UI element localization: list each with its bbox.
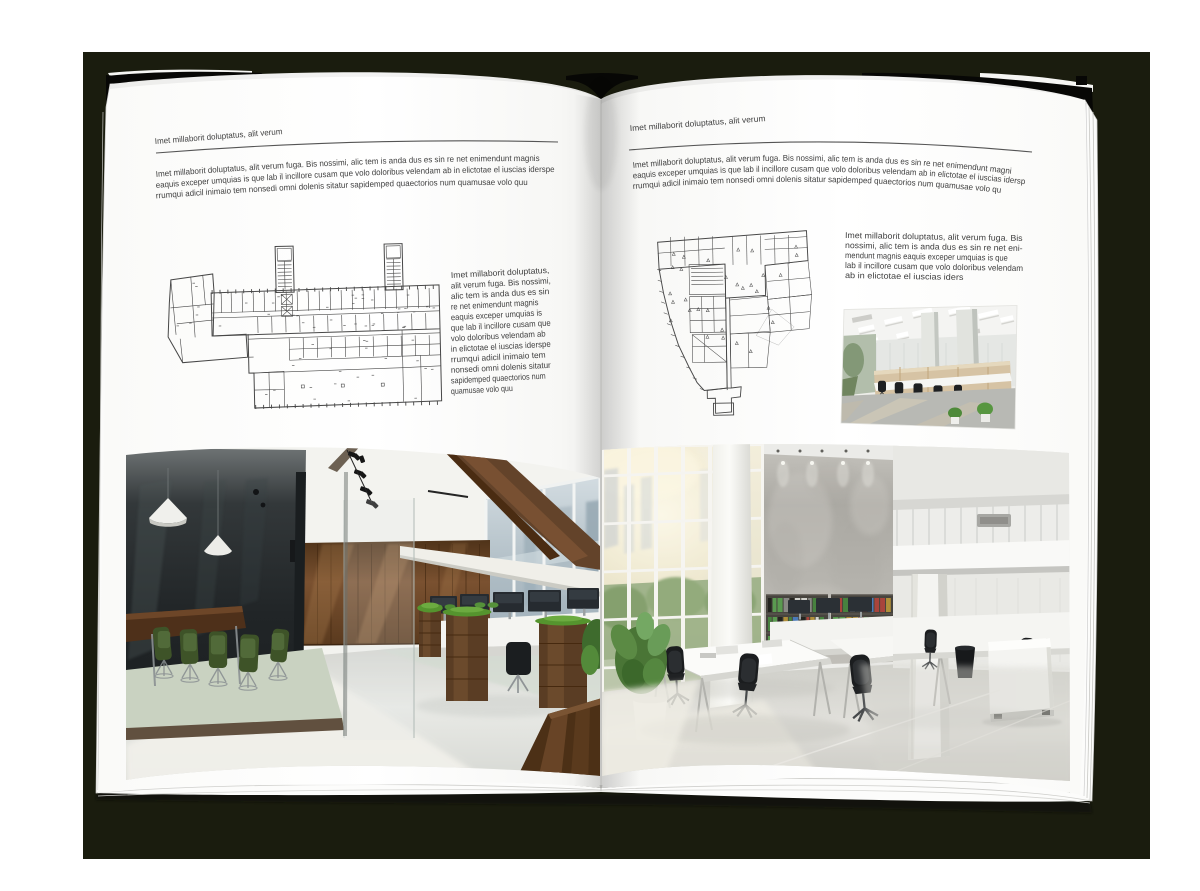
svg-text:ab in elictotae el iuscias ide: ab in elictotae el iuscias iders: [845, 270, 964, 282]
